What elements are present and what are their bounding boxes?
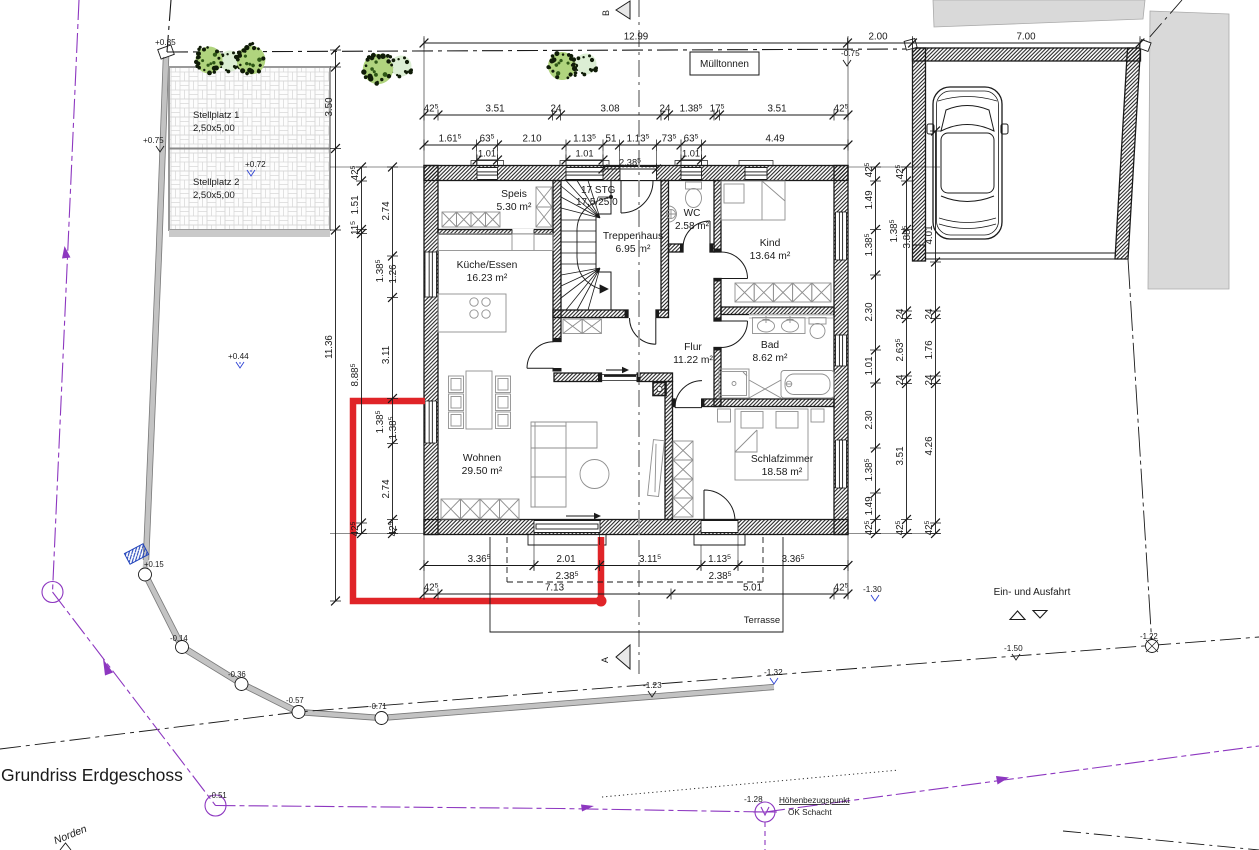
svg-text:3.51: 3.51 (895, 446, 906, 465)
svg-text:16.23 m²: 16.23 m² (467, 273, 508, 284)
svg-text:4.49: 4.49 (765, 134, 784, 145)
svg-text:+0.15: +0.15 (144, 560, 164, 569)
svg-text:24: 24 (895, 308, 906, 319)
svg-text:Stellplatz 1: Stellplatz 1 (193, 110, 239, 121)
svg-text:8.885: 8.885 (350, 363, 361, 386)
svg-text:-0.36: -0.36 (228, 670, 246, 679)
svg-text:WC: WC (684, 208, 701, 219)
svg-text:-0.14: -0.14 (170, 634, 188, 643)
svg-text:3.51: 3.51 (767, 104, 786, 115)
svg-text:1.385: 1.385 (889, 219, 900, 242)
svg-text:1.51: 1.51 (350, 195, 361, 214)
svg-text:-1.22: -1.22 (1140, 632, 1158, 641)
svg-text:Norden: Norden (52, 823, 89, 847)
svg-text:3.115: 3.115 (639, 554, 661, 565)
svg-text:115: 115 (350, 221, 361, 235)
svg-text:Terrasse: Terrasse (744, 615, 780, 626)
svg-text:7.00: 7.00 (1016, 32, 1036, 43)
svg-text:Bad: Bad (761, 340, 780, 351)
svg-text:3.51: 3.51 (485, 104, 504, 115)
svg-text:2.10: 2.10 (522, 134, 542, 145)
svg-text:24: 24 (895, 374, 906, 385)
svg-text:+0.72: +0.72 (245, 160, 266, 169)
svg-text:735: 735 (662, 133, 677, 144)
svg-text:3.50: 3.50 (324, 97, 335, 117)
svg-text:1.01: 1.01 (478, 149, 496, 159)
svg-text:2.58 m²: 2.58 m² (675, 221, 710, 232)
svg-text:2.385: 2.385 (556, 571, 579, 582)
svg-text:1.49: 1.49 (864, 190, 875, 209)
svg-text:12.99: 12.99 (624, 32, 649, 43)
svg-text:1.385: 1.385 (375, 259, 386, 282)
svg-text:1.385: 1.385 (375, 410, 386, 433)
svg-text:2.30: 2.30 (864, 410, 875, 430)
svg-text:1.01: 1.01 (575, 149, 593, 159)
svg-text:+0.44: +0.44 (228, 352, 249, 361)
svg-text:Kind: Kind (760, 238, 781, 249)
svg-text:1.615: 1.615 (439, 133, 462, 144)
svg-text:29.50 m²: 29.50 m² (462, 466, 503, 477)
svg-text:425: 425 (834, 103, 849, 114)
svg-text:425: 425 (864, 520, 875, 535)
svg-text:1.76: 1.76 (924, 340, 935, 360)
svg-text:2.74: 2.74 (381, 479, 392, 499)
svg-text:2.385: 2.385 (709, 571, 732, 582)
svg-text:2.00: 2.00 (868, 32, 888, 43)
svg-text:1.01: 1.01 (864, 356, 875, 375)
svg-text:2,50x5,00: 2,50x5,00 (193, 123, 235, 134)
svg-text:24: 24 (660, 104, 671, 115)
svg-text:3.885: 3.885 (902, 225, 913, 248)
svg-text:2.74: 2.74 (381, 201, 392, 221)
svg-text:7.13: 7.13 (545, 583, 565, 594)
svg-text:24: 24 (924, 374, 935, 385)
svg-text:-1.28: -1.28 (744, 795, 763, 804)
svg-text:-1.23: -1.23 (643, 681, 662, 690)
svg-text:2.01: 2.01 (556, 554, 575, 565)
svg-text:2.30: 2.30 (864, 302, 875, 322)
svg-text:-0.75: -0.75 (841, 49, 860, 58)
svg-text:425: 425 (864, 162, 875, 177)
svg-text:1.135: 1.135 (627, 133, 650, 144)
svg-text:425: 425 (350, 165, 361, 180)
svg-text:5.01: 5.01 (743, 583, 762, 594)
svg-text:-0.71: -0.71 (369, 702, 387, 711)
svg-text:Höhenbezugspunkt: Höhenbezugspunkt (779, 796, 850, 805)
svg-text:Grundriss Erdgeschoss: Grundriss Erdgeschoss (1, 765, 183, 785)
svg-text:425: 425 (895, 520, 906, 535)
svg-text:Speis: Speis (501, 189, 527, 200)
svg-text:1.385: 1.385 (864, 458, 875, 481)
svg-text:13.64 m²: 13.64 m² (750, 251, 791, 262)
svg-text:11.36: 11.36 (324, 335, 335, 359)
svg-text:1.49: 1.49 (864, 496, 875, 515)
svg-text:A: A (600, 657, 610, 663)
svg-text:Ein- und Ausfahrt: Ein- und Ausfahrt (994, 587, 1071, 598)
svg-text:-1.30: -1.30 (863, 585, 882, 594)
svg-text:Schlafzimmer: Schlafzimmer (751, 454, 814, 465)
svg-text:-0.57: -0.57 (286, 696, 304, 705)
svg-text:3.08: 3.08 (600, 104, 620, 115)
svg-text:1.385: 1.385 (864, 233, 875, 256)
svg-text:+0.85: +0.85 (155, 38, 176, 47)
svg-text:-1.50: -1.50 (1004, 644, 1023, 653)
svg-text:Mülltonnen: Mülltonnen (700, 59, 749, 70)
svg-text:-1.32: -1.32 (764, 668, 783, 677)
svg-text:5.30 m²: 5.30 m² (497, 202, 532, 213)
svg-text:Flur: Flur (684, 342, 702, 353)
svg-text:4.01: 4.01 (924, 225, 935, 244)
svg-text:425: 425 (834, 582, 849, 593)
svg-text:11.22 m²: 11.22 m² (673, 355, 713, 366)
svg-text:24: 24 (551, 104, 562, 115)
svg-text:425: 425 (350, 521, 361, 536)
svg-text:Stellplatz 2: Stellplatz 2 (193, 177, 239, 188)
svg-text:51: 51 (606, 134, 617, 145)
svg-text:6.95 m²: 6.95 m² (616, 244, 651, 255)
svg-text:Küche/Essen: Küche/Essen (457, 260, 518, 271)
svg-text:-0.51: -0.51 (209, 791, 227, 800)
svg-text:1.135: 1.135 (573, 133, 596, 144)
svg-text:+0.75: +0.75 (143, 136, 164, 145)
svg-text:Wohnen: Wohnen (463, 453, 501, 464)
svg-text:425: 425 (388, 521, 399, 536)
svg-text:1.26: 1.26 (388, 264, 399, 284)
svg-text:Treppenhaus: Treppenhaus (603, 231, 663, 242)
svg-text:635: 635 (480, 133, 495, 144)
svg-text:17 STG: 17 STG (581, 185, 616, 196)
svg-text:425: 425 (424, 103, 439, 114)
svg-text:1.135: 1.135 (708, 554, 731, 565)
svg-text:425: 425 (424, 582, 439, 593)
svg-text:OK Schacht: OK Schacht (788, 808, 832, 817)
svg-text:8.62 m²: 8.62 m² (753, 353, 788, 364)
svg-text:18.58 m²: 18.58 m² (762, 467, 803, 478)
svg-text:2,50x5,00: 2,50x5,00 (193, 190, 235, 201)
svg-text:635: 635 (684, 133, 699, 144)
svg-text:2.635: 2.635 (895, 338, 906, 361)
svg-text:3.365: 3.365 (468, 554, 491, 565)
svg-text:3.11: 3.11 (381, 346, 392, 364)
svg-text:1.01: 1.01 (682, 149, 700, 159)
svg-text:B: B (601, 10, 611, 16)
svg-text:3.365: 3.365 (782, 554, 805, 565)
svg-text:4.26: 4.26 (924, 436, 935, 456)
svg-text:24: 24 (924, 308, 935, 319)
svg-text:17,5/25,0: 17,5/25,0 (576, 197, 618, 208)
svg-text:1.385: 1.385 (680, 103, 703, 114)
svg-text:1.385: 1.385 (388, 416, 399, 439)
